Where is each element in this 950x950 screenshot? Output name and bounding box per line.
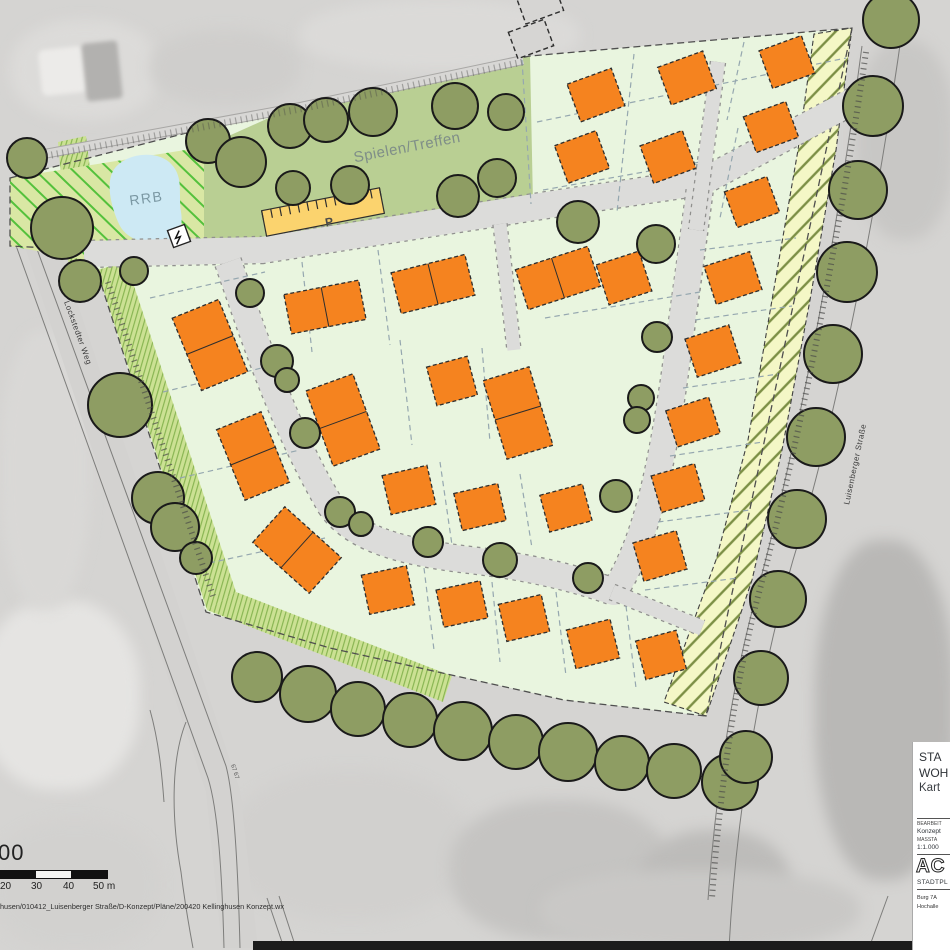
tree [432,83,478,129]
field-label: MASSTA [917,837,950,843]
file-path-text: husen/010412_Luisenberger Straße/D-Konze… [0,902,284,911]
scale-tick: 30 [31,881,42,892]
street-right-label: Luisenberger Straße [842,423,868,506]
tree [817,242,877,302]
tree [483,543,517,577]
firm-name: STADTPL [917,879,950,886]
plan-title-line: WOH [919,766,950,780]
tree [557,201,599,243]
tree [829,161,887,219]
house-building [361,566,414,615]
tree [275,368,299,392]
tree [489,715,543,769]
address-line: Hochalle [917,903,950,912]
address-line: Burg 7A [917,894,950,903]
plan-title-line: STA [919,750,950,764]
tree [216,137,266,187]
tree [413,527,443,557]
title-block-divider [917,889,950,890]
tree [768,490,826,548]
tree [637,225,675,263]
tree [88,373,152,437]
house-footprint [361,566,414,615]
tree [647,744,701,798]
title-block-divider [917,854,950,855]
tree [232,652,282,702]
tree [120,257,148,285]
plan-title-line: Kart [919,782,950,794]
architect-logo: AC [916,856,950,878]
firm-address: Burg 7A Hochalle [917,894,950,913]
tree [180,542,212,574]
scale-tick-labels: 20 30 40 50 m [0,881,150,895]
tree [349,512,373,536]
tree [236,279,264,307]
field-label: BEARBEIT [917,821,950,827]
tree [478,159,516,197]
tree [59,260,101,302]
field-value: Konzept [917,828,950,835]
tree [331,682,385,736]
scale-ratio-text: 00 [0,840,150,866]
existing-building-outline [508,19,553,58]
tree [539,723,597,781]
scale-segment [0,871,36,878]
tree [280,666,336,722]
tree [290,418,320,448]
tree [383,693,437,747]
tree [624,407,650,433]
scale-tick: 50 m [93,881,115,892]
tree [7,138,47,178]
tree [31,197,93,259]
tree [276,171,310,205]
tree [720,731,772,783]
scale-bar-segments [0,871,107,878]
base-map-line [150,710,164,802]
tree [843,76,903,136]
tree [642,322,672,352]
tree [488,94,524,130]
tree [573,563,603,593]
tree [595,736,649,790]
tree [804,325,862,383]
tree [863,0,919,48]
base-map-line [174,722,193,948]
scale-tick: 40 [63,881,74,892]
existing-building [508,19,553,58]
scale-segment [36,871,71,878]
development-plan-map[interactable]: RRBSpielen/TreffenPLockstedter WegLuisen… [0,0,950,950]
tree [434,702,492,760]
site-plan-screenshot: RRBSpielen/TreffenPLockstedter WegLuisen… [0,0,950,950]
scale-tick: 20 [0,881,11,892]
scale-segment [71,871,107,878]
bottom-border-bar [253,941,913,950]
field-value: 1:1.000 [917,844,950,851]
tree [349,88,397,136]
tree [331,166,369,204]
title-block-divider [917,818,950,819]
tree [437,175,479,217]
tree [750,571,806,627]
title-block: STA WOH Kart BEARBEIT Konzept MASSTA 1:1… [912,742,950,950]
scale-bar: 00 20 30 40 50 m [0,840,150,895]
tree [600,480,632,512]
